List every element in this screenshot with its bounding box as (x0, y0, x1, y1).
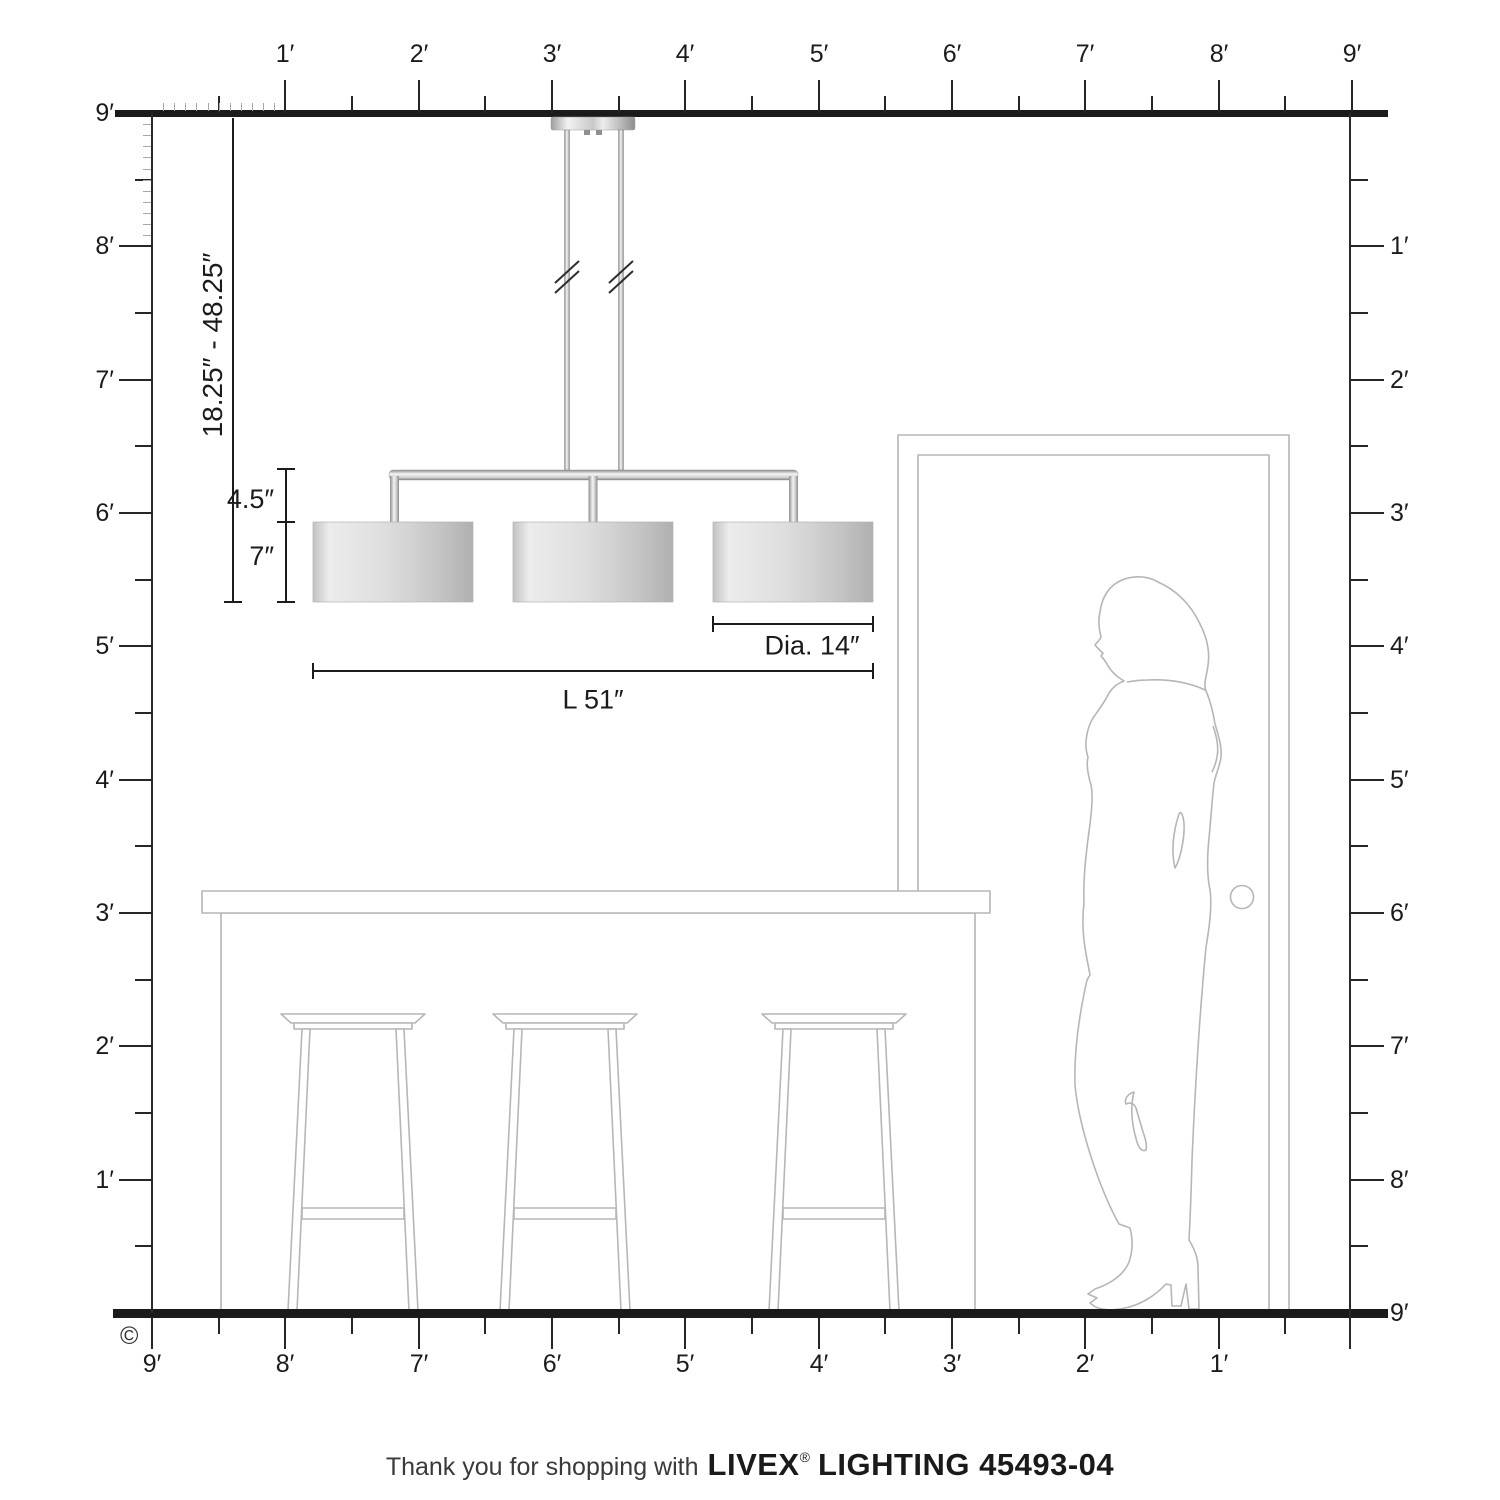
height-dimension-line (277, 469, 295, 602)
footer-thanks: Thank you for shopping with (386, 1453, 699, 1481)
footer-text: Thank you for shopping withLIVEX®LIGHTIN… (0, 1447, 1500, 1483)
registered-trademark-icon: ® (800, 1449, 810, 1465)
copyright-mark: © (120, 1322, 138, 1351)
dimension-overall-length: L 51″ (562, 685, 623, 716)
footer-brand: LIVEX (708, 1447, 800, 1482)
dimension-frame-height: 4.5″ (168, 484, 274, 515)
length-dimension-line (313, 663, 873, 679)
dimension-shade-height: 7″ (168, 541, 274, 572)
dimension-drop-range: 18.25″ - 48.25″ (197, 253, 229, 438)
lighting-dimension-diagram: 1′2′3′4′5′6′7′8′9′9′8′7′6′5′4′3′2′1′1′2′… (0, 0, 1500, 1500)
footer-product-number: LIGHTING 45493-04 (818, 1447, 1114, 1482)
dimension-lines (0, 0, 1500, 1500)
dimension-shade-diameter: Dia. 14″ (764, 631, 859, 662)
